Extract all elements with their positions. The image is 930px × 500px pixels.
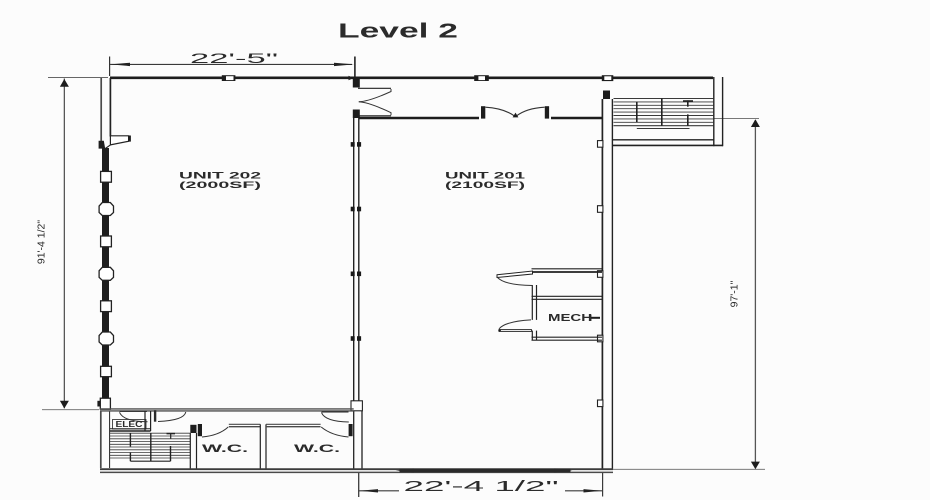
svg-text:91'-4 1/2": 91'-4 1/2" xyxy=(36,220,48,265)
svg-text:(2000SF): (2000SF) xyxy=(179,180,261,191)
svg-text:W.C.: W.C. xyxy=(294,443,340,455)
svg-text:(2100SF): (2100SF) xyxy=(445,180,525,191)
svg-text:MECH: MECH xyxy=(548,312,592,324)
svg-text:ELEC: ELEC xyxy=(116,420,143,429)
svg-text:Level 2: Level 2 xyxy=(338,20,458,43)
svg-text:97'-1": 97'-1" xyxy=(729,280,741,307)
svg-text:22'-4 1/2": 22'-4 1/2" xyxy=(404,479,559,495)
svg-text:22'-5": 22'-5" xyxy=(190,51,279,66)
svg-text:W.C.: W.C. xyxy=(202,443,248,455)
